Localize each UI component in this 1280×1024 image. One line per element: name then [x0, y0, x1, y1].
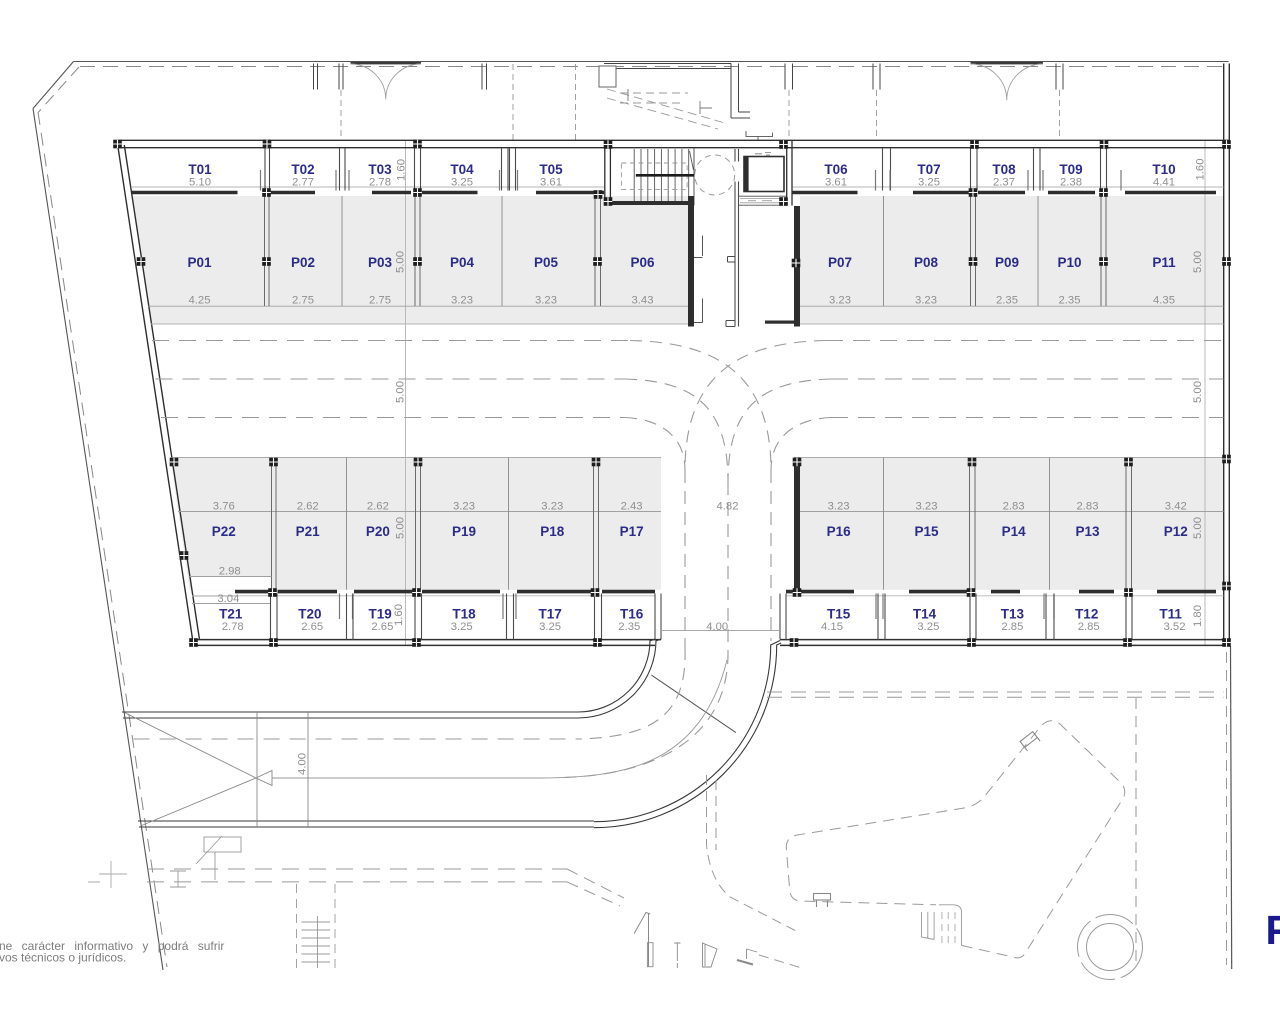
- svg-text:P02: P02: [291, 255, 315, 270]
- svg-text:2.83: 2.83: [1003, 501, 1025, 513]
- svg-text:T03: T03: [368, 162, 392, 177]
- svg-text:4.15: 4.15: [821, 621, 843, 633]
- svg-text:4.00: 4.00: [296, 753, 308, 775]
- svg-text:3.25: 3.25: [918, 177, 940, 189]
- svg-text:P19: P19: [452, 524, 476, 539]
- svg-text:2.75: 2.75: [369, 295, 391, 307]
- svg-text:P09: P09: [995, 255, 1019, 270]
- svg-text:1.60: 1.60: [1194, 159, 1206, 181]
- svg-text:3.23: 3.23: [453, 501, 475, 513]
- svg-text:T12: T12: [1075, 607, 1098, 622]
- svg-text:T20: T20: [298, 607, 321, 622]
- svg-text:P: P: [1266, 907, 1280, 953]
- svg-text:2.78: 2.78: [369, 177, 391, 189]
- svg-text:4.25: 4.25: [189, 295, 211, 307]
- svg-text:T13: T13: [1001, 607, 1025, 622]
- svg-text:3.23: 3.23: [451, 295, 473, 307]
- svg-text:5.00: 5.00: [1192, 251, 1204, 273]
- svg-text:vos técnicos o jurídicos.: vos técnicos o jurídicos.: [0, 950, 126, 964]
- svg-text:2.75: 2.75: [292, 295, 314, 307]
- svg-text:3.43: 3.43: [632, 295, 654, 307]
- svg-text:3.23: 3.23: [916, 501, 938, 513]
- svg-text:P10: P10: [1057, 255, 1081, 270]
- svg-text:T05: T05: [539, 162, 563, 177]
- svg-text:1.60: 1.60: [393, 604, 405, 626]
- svg-text:P06: P06: [630, 255, 655, 270]
- svg-text:T16: T16: [620, 607, 644, 622]
- svg-text:3.23: 3.23: [915, 295, 937, 307]
- svg-text:P01: P01: [187, 255, 212, 270]
- svg-text:3.04: 3.04: [217, 593, 239, 605]
- svg-text:2.62: 2.62: [367, 501, 389, 513]
- svg-text:T17: T17: [538, 607, 561, 622]
- svg-text:T11: T11: [1159, 607, 1182, 622]
- svg-text:P03: P03: [368, 255, 393, 270]
- svg-text:2.65: 2.65: [301, 621, 323, 633]
- svg-text:T14: T14: [913, 607, 937, 622]
- svg-text:3.52: 3.52: [1164, 621, 1186, 633]
- svg-text:2.35: 2.35: [1059, 295, 1081, 307]
- svg-text:2.65: 2.65: [371, 621, 393, 633]
- svg-text:P21: P21: [296, 524, 321, 539]
- svg-text:5.00: 5.00: [394, 381, 406, 403]
- svg-text:P18: P18: [540, 524, 565, 539]
- svg-text:P16: P16: [827, 524, 852, 539]
- svg-text:P04: P04: [450, 255, 475, 270]
- svg-text:5.00: 5.00: [394, 251, 406, 273]
- svg-text:2.78: 2.78: [222, 621, 244, 633]
- svg-text:3.25: 3.25: [451, 621, 473, 633]
- svg-text:P22: P22: [212, 524, 236, 539]
- svg-text:5.10: 5.10: [189, 177, 211, 189]
- svg-text:4.00: 4.00: [706, 621, 728, 633]
- svg-text:P15: P15: [914, 524, 939, 539]
- svg-text:T21: T21: [219, 607, 243, 622]
- svg-text:T06: T06: [824, 162, 848, 177]
- svg-text:T02: T02: [291, 162, 314, 177]
- svg-text:5.00: 5.00: [1192, 381, 1204, 403]
- svg-text:T07: T07: [917, 162, 940, 177]
- svg-text:3.25: 3.25: [451, 177, 473, 189]
- svg-text:P08: P08: [914, 255, 939, 270]
- svg-text:3.61: 3.61: [540, 177, 562, 189]
- svg-text:2.62: 2.62: [297, 501, 319, 513]
- svg-text:T18: T18: [452, 607, 476, 622]
- svg-text:2.43: 2.43: [621, 501, 643, 513]
- svg-text:T15: T15: [827, 607, 851, 622]
- svg-text:P14: P14: [1002, 524, 1027, 539]
- svg-text:3.25: 3.25: [917, 621, 939, 633]
- svg-text:4.35: 4.35: [1153, 295, 1175, 307]
- svg-text:P11: P11: [1152, 255, 1176, 270]
- svg-text:T19: T19: [368, 607, 391, 622]
- svg-text:T08: T08: [992, 162, 1016, 177]
- svg-text:3.23: 3.23: [828, 501, 850, 513]
- svg-text:3.25: 3.25: [539, 621, 561, 633]
- svg-text:T04: T04: [450, 162, 474, 177]
- svg-text:2.98: 2.98: [219, 566, 241, 578]
- svg-text:4.41: 4.41: [1153, 177, 1175, 189]
- svg-text:T01: T01: [188, 162, 212, 177]
- svg-text:3.23: 3.23: [541, 501, 563, 513]
- svg-text:5.00: 5.00: [394, 517, 406, 539]
- svg-text:P20: P20: [366, 524, 390, 539]
- svg-text:P07: P07: [828, 255, 852, 270]
- svg-text:2.35: 2.35: [618, 621, 640, 633]
- svg-text:2.77: 2.77: [292, 177, 314, 189]
- svg-text:4.82: 4.82: [717, 501, 739, 513]
- svg-text:2.85: 2.85: [1078, 621, 1100, 633]
- svg-text:T09: T09: [1059, 162, 1082, 177]
- svg-text:2.83: 2.83: [1077, 501, 1099, 513]
- svg-text:P17: P17: [620, 524, 644, 539]
- svg-text:3.61: 3.61: [825, 177, 847, 189]
- svg-text:3.76: 3.76: [213, 501, 235, 513]
- svg-text:P13: P13: [1075, 524, 1100, 539]
- svg-text:3.23: 3.23: [535, 295, 557, 307]
- svg-text:T10: T10: [1152, 162, 1175, 177]
- svg-text:1.80: 1.80: [1192, 605, 1204, 627]
- svg-text:1.60: 1.60: [395, 159, 407, 181]
- svg-text:P05: P05: [534, 255, 559, 270]
- svg-text:2.37: 2.37: [993, 177, 1015, 189]
- svg-text:P12: P12: [1164, 524, 1188, 539]
- svg-text:5.00: 5.00: [1192, 517, 1204, 539]
- svg-text:2.35: 2.35: [996, 295, 1018, 307]
- svg-text:3.23: 3.23: [829, 295, 851, 307]
- svg-text:2.38: 2.38: [1060, 177, 1082, 189]
- svg-text:3.42: 3.42: [1165, 501, 1187, 513]
- svg-text:2.85: 2.85: [1001, 621, 1023, 633]
